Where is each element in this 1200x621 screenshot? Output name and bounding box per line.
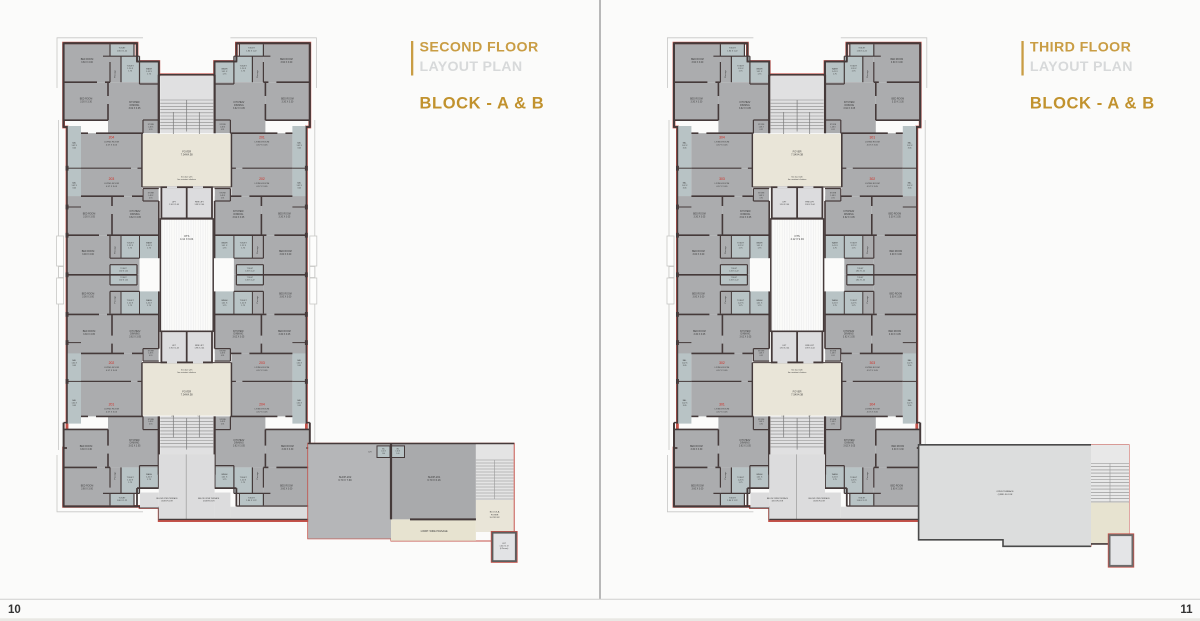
svg-text:BED ROOM3.00 X 3.00: BED ROOM3.00 X 3.00	[279, 294, 292, 299]
svg-text:Passage: Passage	[257, 471, 259, 480]
svg-text:KITCHEN/DINNING3.62 X 3.05: KITCHEN/DINNING3.62 X 3.05	[233, 211, 245, 219]
svg-text:Passage: Passage	[115, 69, 117, 78]
svg-text:KITCHEN/DINNING3.62 X 3.05: KITCHEN/DINNING3.62 X 3.05	[233, 102, 245, 110]
svg-text:BLOCK - A & B: BLOCK - A & B	[1030, 95, 1155, 113]
svg-text:KITCHEN/DINNING3.62 X 3.05: KITCHEN/DINNING3.62 X 3.05	[129, 331, 141, 339]
svg-text:BED ROOM3.00 X 3.00: BED ROOM3.00 X 3.00	[82, 251, 95, 256]
svg-text:Passage: Passage	[115, 245, 117, 254]
svg-text:BED ROOM3.00 X 3.00: BED ROOM3.00 X 3.00	[692, 251, 705, 256]
svg-text:KITCHEN/DINNING3.62 X 3.05: KITCHEN/DINNING3.62 X 3.05	[843, 102, 855, 110]
svg-text:BED ROOM3.30 X 3.05: BED ROOM3.30 X 3.05	[278, 214, 291, 219]
svg-text:BED ROOM3.30 X 3.30: BED ROOM3.30 X 3.30	[80, 446, 93, 451]
svg-text:BED ROOM3.30 X 3.05: BED ROOM3.30 X 3.05	[693, 214, 706, 219]
svg-text:FIRE LIFT1.98 X 2.44: FIRE LIFT1.98 X 2.44	[805, 345, 815, 350]
svg-text:BED ROOM3.30 X 3.05: BED ROOM3.30 X 3.05	[83, 214, 96, 219]
svg-text:KITCHEN/DINNING3.62 X 3.05: KITCHEN/DINNING3.62 X 3.05	[233, 331, 245, 339]
svg-text:BED ROOM3.60 X 3.00: BED ROOM3.60 X 3.00	[691, 59, 704, 64]
svg-text:BED ROOM3.60 X 3.00: BED ROOM3.60 X 3.00	[891, 59, 904, 64]
svg-text:BED ROOM3.30 X 3.05: BED ROOM3.30 X 3.05	[278, 331, 291, 336]
svg-text:KITCHEN/DINNING3.62 X 3.05: KITCHEN/DINNING3.62 X 3.05	[740, 331, 752, 339]
svg-text:BED ROOM3.30 X 3.05: BED ROOM3.30 X 3.05	[889, 214, 902, 219]
svg-text:Passage: Passage	[867, 69, 869, 78]
svg-text:Passage: Passage	[867, 471, 869, 480]
svg-text:BED ROOM3.30 X 3.05: BED ROOM3.30 X 3.05	[693, 331, 706, 336]
svg-text:BED ROOM3.30 X 3.30: BED ROOM3.30 X 3.30	[80, 99, 93, 104]
svg-text:SECOND FLOOR: SECOND FLOOR	[420, 40, 539, 56]
svg-text:BED ROOM3.30 X 3.30: BED ROOM3.30 X 3.30	[281, 446, 294, 451]
svg-text:1.82MT. WIDE PASSAGE: 1.82MT. WIDE PASSAGE	[420, 530, 448, 533]
svg-text:SHOP-2016.70 X 6.16: SHOP-2016.70 X 6.16	[427, 475, 441, 482]
svg-text:KITCHEN/DINNING3.62 X 3.05: KITCHEN/DINNING3.62 X 3.05	[740, 211, 752, 219]
svg-text:BED ROOM3.30 X 3.05: BED ROOM3.30 X 3.05	[83, 331, 96, 336]
svg-text:BED ROOM3.60 X 3.00: BED ROOM3.60 X 3.00	[280, 59, 293, 64]
svg-text:LAYOUT PLAN: LAYOUT PLAN	[1030, 59, 1133, 75]
svg-text:THIRD FLOOR: THIRD FLOOR	[1030, 40, 1131, 56]
svg-text:KITCHEN/DINNING3.62 X 3.05: KITCHEN/DINNING3.62 X 3.05	[129, 211, 141, 219]
svg-text:BED ROOM3.60 X 3.00: BED ROOM3.60 X 3.00	[891, 486, 904, 491]
svg-text:KITCHEN/DINNING3.62 X 3.05: KITCHEN/DINNING3.62 X 3.05	[739, 102, 751, 110]
svg-text:OPEN TERRACE@3RD.FLOOR: OPEN TERRACE@3RD.FLOOR	[996, 490, 1014, 496]
svg-text:KITCHEN/DINNING3.62 X 3.05: KITCHEN/DINNING3.62 X 3.05	[739, 440, 751, 448]
svg-text:BED ROOM3.00 X 3.00: BED ROOM3.00 X 3.00	[890, 294, 903, 299]
svg-text:BED ROOM3.30 X 3.30: BED ROOM3.30 X 3.30	[892, 446, 905, 451]
svg-text:BED ROOM3.60 X 3.00: BED ROOM3.60 X 3.00	[280, 486, 293, 491]
svg-text:BLOCK - A & B: BLOCK - A & B	[420, 95, 545, 113]
svg-text:BED ROOM3.60 X 3.00: BED ROOM3.60 X 3.00	[691, 486, 704, 491]
svg-text:KITCHEN/DINNING3.62 X 3.05: KITCHEN/DINNING3.62 X 3.05	[129, 102, 141, 110]
svg-text:BED ROOM3.30 X 3.30: BED ROOM3.30 X 3.30	[690, 446, 703, 451]
svg-text:Passage: Passage	[115, 471, 117, 480]
svg-text:BED ROOM3.30 X 3.30: BED ROOM3.30 X 3.30	[892, 99, 905, 104]
svg-text:BED ROOM3.60 X 3.00: BED ROOM3.60 X 3.00	[81, 59, 94, 64]
svg-text:KITCHEN/DINNING3.62 X 3.05: KITCHEN/DINNING3.62 X 3.05	[843, 211, 855, 219]
svg-text:Passage: Passage	[257, 295, 259, 304]
svg-text:Passage: Passage	[725, 471, 727, 480]
svg-text:BED ROOM3.30 X 3.30: BED ROOM3.30 X 3.30	[690, 99, 703, 104]
svg-text:KITCHEN/DINNING3.62 X 3.05: KITCHEN/DINNING3.62 X 3.05	[843, 440, 855, 448]
svg-text:KITCHEN/DINNING3.62 X 3.05: KITCHEN/DINNING3.62 X 3.05	[233, 440, 245, 448]
svg-text:KITCHEN/DINNING3.62 X 3.05: KITCHEN/DINNING3.62 X 3.05	[843, 331, 855, 339]
svg-text:BED ROOM3.00 X 3.00: BED ROOM3.00 X 3.00	[279, 251, 292, 256]
svg-text:BED ROOM3.60 X 3.00: BED ROOM3.60 X 3.00	[81, 486, 94, 491]
svg-text:KITCHEN/DINNING3.62 X 3.05: KITCHEN/DINNING3.62 X 3.05	[129, 440, 141, 448]
svg-text:Passage: Passage	[257, 69, 259, 78]
svg-text:Passage: Passage	[867, 245, 869, 254]
svg-text:Passage: Passage	[725, 245, 727, 254]
svg-text:FIRE LIFT1.98 X 2.44: FIRE LIFT1.98 X 2.44	[805, 202, 815, 207]
svg-text:LAYOUT PLAN: LAYOUT PLAN	[420, 59, 523, 75]
svg-text:BED ROOM3.00 X 3.00: BED ROOM3.00 X 3.00	[890, 251, 903, 256]
svg-text:SHOP-2026.70 X 7.69: SHOP-2026.70 X 7.69	[338, 475, 352, 482]
svg-text:11: 11	[1180, 604, 1193, 616]
svg-text:10: 10	[8, 604, 21, 616]
svg-text:Passage: Passage	[867, 295, 869, 304]
svg-text:FIRE LIFT1.98 X 2.44: FIRE LIFT1.98 X 2.44	[194, 345, 204, 350]
svg-text:FIRE LIFT1.98 X 2.44: FIRE LIFT1.98 X 2.44	[194, 202, 204, 207]
svg-text:BED ROOM3.30 X 3.30: BED ROOM3.30 X 3.30	[281, 99, 294, 104]
svg-text:Passage: Passage	[725, 69, 727, 78]
svg-text:Passage: Passage	[115, 295, 117, 304]
svg-text:BED ROOM3.00 X 3.00: BED ROOM3.00 X 3.00	[82, 294, 95, 299]
svg-text:Passage: Passage	[725, 295, 727, 304]
svg-text:BED ROOM3.00 X 3.00: BED ROOM3.00 X 3.00	[692, 294, 705, 299]
svg-text:Passage: Passage	[257, 245, 259, 254]
svg-text:BED ROOM3.30 X 3.05: BED ROOM3.30 X 3.05	[889, 331, 902, 336]
